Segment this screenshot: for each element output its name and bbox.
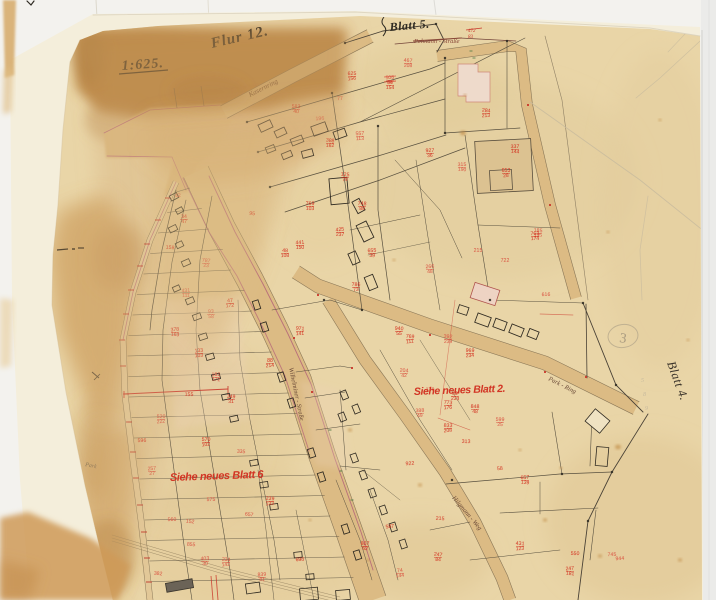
svg-text:550: 550 xyxy=(571,551,580,557)
svg-text:172: 172 xyxy=(212,377,221,383)
svg-text:83: 83 xyxy=(468,35,474,40)
svg-text:215: 215 xyxy=(474,248,483,254)
svg-text:239: 239 xyxy=(444,339,453,345)
svg-text:48: 48 xyxy=(472,409,478,415)
svg-text:123: 123 xyxy=(516,546,525,552)
svg-text:382: 382 xyxy=(154,571,163,578)
svg-text:8: 8 xyxy=(643,392,646,398)
svg-text:79: 79 xyxy=(342,177,348,183)
svg-text:141: 141 xyxy=(296,331,305,337)
svg-text:42: 42 xyxy=(401,373,407,379)
svg-text:162: 162 xyxy=(326,143,335,149)
svg-text:698: 698 xyxy=(295,557,304,564)
svg-text:25: 25 xyxy=(497,422,503,428)
svg-text:855: 855 xyxy=(187,542,196,549)
svg-text:31: 31 xyxy=(228,399,234,405)
svg-text:944: 944 xyxy=(615,556,624,563)
svg-text:84: 84 xyxy=(435,557,441,563)
svg-text:58: 58 xyxy=(497,466,503,472)
svg-text:722: 722 xyxy=(501,258,510,264)
svg-text:62: 62 xyxy=(362,546,368,552)
svg-text:48: 48 xyxy=(427,269,433,275)
svg-text:5: 5 xyxy=(641,378,644,384)
svg-text:560: 560 xyxy=(168,517,177,523)
svg-text:103: 103 xyxy=(306,206,315,212)
svg-text:152: 152 xyxy=(185,519,194,526)
svg-text:237: 237 xyxy=(336,232,345,238)
svg-text:113: 113 xyxy=(356,136,364,142)
svg-text:30: 30 xyxy=(202,561,208,567)
svg-text:215: 215 xyxy=(436,516,445,523)
svg-text:313: 313 xyxy=(462,439,471,445)
svg-text:89: 89 xyxy=(359,206,365,212)
svg-text:575: 575 xyxy=(207,497,216,503)
svg-text:616: 616 xyxy=(542,292,551,298)
svg-text:233: 233 xyxy=(451,396,460,402)
svg-text:174: 174 xyxy=(531,236,540,242)
svg-text:108: 108 xyxy=(281,253,290,259)
svg-text:335: 335 xyxy=(237,449,246,456)
svg-text:39: 39 xyxy=(369,253,375,260)
svg-text:657: 657 xyxy=(244,512,253,519)
svg-text:922: 922 xyxy=(405,461,414,467)
svg-text:208: 208 xyxy=(404,63,413,69)
svg-text:49: 49 xyxy=(417,413,423,420)
svg-text:150: 150 xyxy=(296,245,305,251)
svg-text:Pelmann - Straße: Pelmann - Straße xyxy=(413,38,460,45)
svg-text:55: 55 xyxy=(396,331,402,337)
svg-text:36: 36 xyxy=(427,153,433,160)
svg-text:155: 155 xyxy=(185,392,194,398)
svg-text:81: 81 xyxy=(259,577,265,583)
svg-text:213: 213 xyxy=(482,113,491,119)
svg-text:28: 28 xyxy=(503,173,509,179)
svg-text:73: 73 xyxy=(353,287,359,293)
svg-text:587: 587 xyxy=(385,524,394,531)
svg-text:66: 66 xyxy=(387,80,393,86)
svg-text:9: 9 xyxy=(645,406,648,412)
